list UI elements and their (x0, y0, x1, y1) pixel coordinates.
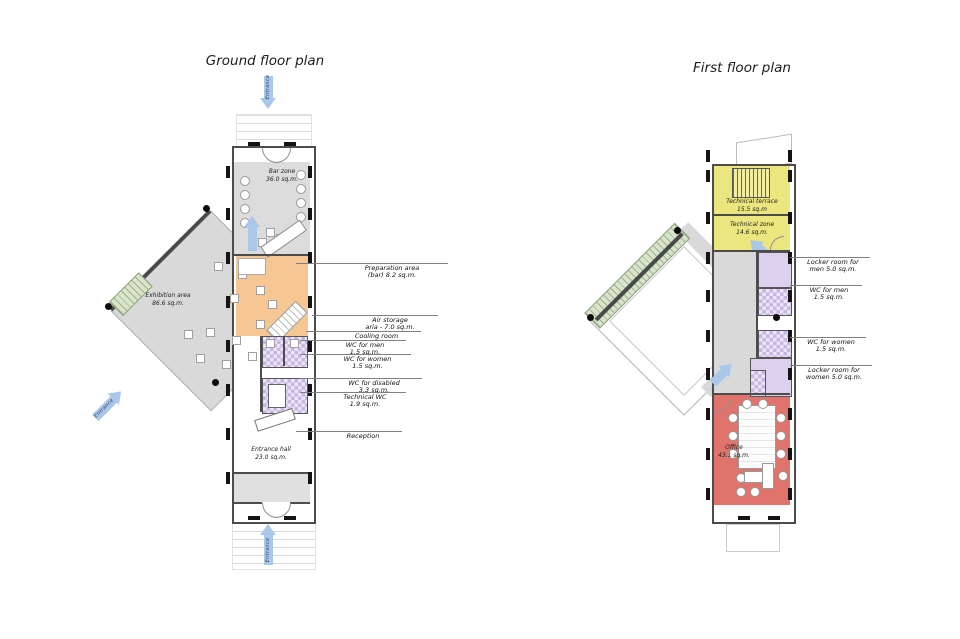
bar-zone-label: Bar zone 36.0 sq.m. (252, 168, 312, 183)
entrance-hall-label: Entrance hall 23.0 sq.m. (238, 446, 304, 461)
technical-terrace-label: Technical terrace 15.5 sq.m (714, 198, 790, 213)
wall (714, 393, 790, 395)
wc-women-room (758, 330, 792, 358)
annotation-air-storage: Air storage aria - 7.0 sq.m. (312, 315, 438, 332)
wc-men-room (758, 288, 792, 316)
wall (260, 336, 262, 412)
bottom-vestibule (234, 474, 310, 502)
annotation-locker-men: Locker room for men 5.0 sq.m. (790, 257, 870, 274)
first-floor-title: First floor plan (642, 60, 842, 76)
arrow-head-up-icon (260, 524, 276, 535)
wall (234, 472, 310, 474)
column-dot (674, 227, 681, 234)
lower-roof-outline (726, 524, 780, 552)
ground-floor-title: Ground floor plan (165, 53, 365, 69)
annotation-reception: Reception (296, 431, 402, 440)
arrow-head-down-icon (260, 98, 276, 109)
arrow-head-up-icon (244, 216, 260, 227)
annotation-wc-men: WC for men 1.5 sq.m. (790, 285, 862, 302)
entrance-arrow-bottom: Entrance (260, 524, 276, 565)
terrace-stair-hatch (732, 168, 770, 198)
entrance-arrow-top: Entrance (260, 76, 276, 109)
arrow-shaft: Entrance (92, 396, 117, 421)
floor-plans-sheet: Ground floor plan Entrance Exhibition ar… (0, 0, 960, 639)
annotation-technical-wc: Technical WC 1.9 sq.m. (300, 392, 406, 409)
office-desk-return (762, 463, 774, 489)
technical-zone-label: Technical zone 14.6 sq.m. (714, 221, 790, 236)
column-dot (212, 379, 219, 386)
annotation-locker-women: Locker room for women 5.0 sq.m. (790, 365, 872, 382)
wall (290, 502, 310, 504)
conference-table (738, 405, 776, 469)
locker-room-men (758, 252, 792, 288)
wall (234, 502, 262, 504)
arrow-shaft: Entrance (264, 76, 273, 98)
closet (238, 258, 266, 275)
annotation-wc-women: WC for women 1.5 sq.m. (790, 337, 866, 354)
exhibition-area-label: Exhibition area 86.6 sq.m. (128, 292, 208, 307)
entrance-label: Entrance (93, 397, 115, 419)
entrance-label: Entrance (265, 75, 271, 100)
arrow-shaft: Entrance (264, 535, 273, 565)
wc-lobby (268, 384, 286, 408)
annotation-preparation-area: Preparation area (bar) 8.2 sq.m. (296, 263, 448, 280)
column-dot (105, 303, 112, 310)
entrance-arrow-side: Entrance (89, 386, 126, 423)
column-dot (773, 314, 780, 321)
arrow-shaft (248, 227, 257, 251)
wall (283, 336, 285, 366)
wall (234, 254, 310, 256)
annotation-wc-women: WC for women 1.5 sq.m. (300, 354, 411, 371)
office-label: Office 43.1 sq.m. (712, 444, 756, 459)
wall (714, 214, 790, 216)
column-dot (587, 314, 594, 321)
circulation-arrow-up (244, 216, 260, 251)
column-dot (203, 205, 210, 212)
entrance-label: Entrance (265, 538, 271, 563)
